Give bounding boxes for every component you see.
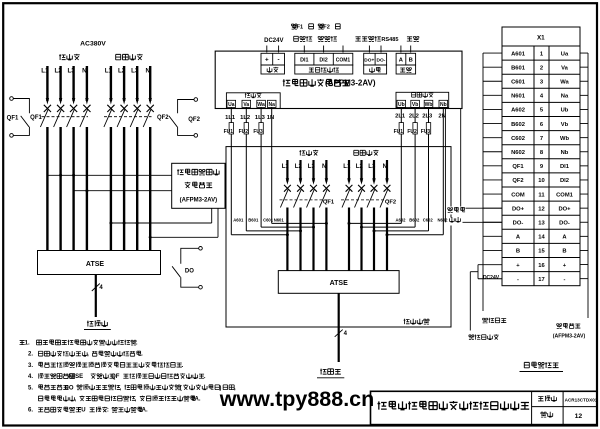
svg-text:ACR13CTDX01: ACR13CTDX01 bbox=[565, 398, 598, 403]
svg-text:Ua: Ua bbox=[561, 51, 569, 57]
svg-text:Wa: Wa bbox=[560, 79, 569, 85]
svg-text:11: 11 bbox=[538, 192, 545, 198]
svg-text:(APPM3-2AV): (APPM3-2AV) bbox=[325, 79, 376, 88]
svg-text:Nb: Nb bbox=[440, 102, 447, 108]
svg-text:QF1: QF1 bbox=[292, 25, 303, 31]
svg-text::: : bbox=[107, 408, 109, 414]
svg-text:-: - bbox=[278, 57, 280, 64]
svg-text:DI1: DI1 bbox=[300, 57, 308, 63]
svg-text:DO+: DO+ bbox=[512, 206, 525, 212]
svg-text:DO+: DO+ bbox=[364, 57, 374, 63]
svg-text:B: B bbox=[409, 57, 413, 63]
svg-text:A601: A601 bbox=[233, 217, 244, 222]
svg-text:B602: B602 bbox=[409, 217, 420, 222]
svg-text:Ub: Ub bbox=[398, 102, 405, 108]
svg-text:ATSE: ATSE bbox=[68, 374, 84, 380]
svg-text:Wb: Wb bbox=[560, 136, 569, 142]
svg-text:FU3: FU3 bbox=[421, 129, 431, 135]
svg-text:N601: N601 bbox=[274, 217, 285, 222]
svg-text:Wb: Wb bbox=[425, 102, 433, 108]
svg-text:DI2: DI2 bbox=[560, 178, 569, 184]
svg-text:FU: FU bbox=[78, 408, 86, 414]
svg-text:QF2: QF2 bbox=[512, 178, 523, 184]
svg-text:): ) bbox=[219, 385, 221, 391]
svg-text:B: B bbox=[516, 249, 520, 255]
svg-text:Ua: Ua bbox=[228, 102, 235, 108]
svg-text:FU2: FU2 bbox=[239, 129, 249, 135]
svg-text:DO: DO bbox=[185, 268, 194, 274]
svg-text:17: 17 bbox=[538, 277, 544, 283]
svg-text:N601: N601 bbox=[511, 94, 526, 100]
svg-text:3A.: 3A. bbox=[191, 396, 201, 402]
svg-text:Vb: Vb bbox=[412, 102, 418, 108]
svg-text:10: 10 bbox=[538, 178, 544, 184]
svg-text:Na: Na bbox=[268, 102, 275, 108]
svg-text:B: B bbox=[562, 249, 566, 255]
svg-text:(AFPM3-2AV): (AFPM3-2AV) bbox=[553, 333, 586, 339]
svg-text:Ub: Ub bbox=[561, 108, 569, 114]
svg-text:2L2: 2L2 bbox=[409, 114, 419, 120]
svg-text:B602: B602 bbox=[511, 122, 525, 128]
svg-text:COM1: COM1 bbox=[556, 192, 574, 198]
svg-text:QF2: QF2 bbox=[188, 117, 200, 123]
svg-text:N602: N602 bbox=[511, 150, 525, 156]
svg-text:13: 13 bbox=[538, 220, 545, 226]
svg-text:-: - bbox=[517, 277, 519, 283]
svg-text:4.: 4. bbox=[28, 374, 33, 380]
svg-text:DO-: DO- bbox=[513, 220, 524, 226]
svg-text:3.: 3. bbox=[28, 363, 33, 369]
svg-text:16: 16 bbox=[538, 263, 545, 269]
svg-text:X1: X1 bbox=[537, 35, 545, 42]
svg-text:DO: DO bbox=[65, 385, 74, 391]
svg-text:FU2: FU2 bbox=[407, 129, 417, 135]
svg-text:N602: N602 bbox=[437, 217, 448, 222]
svg-text:QF1: QF1 bbox=[7, 116, 19, 122]
svg-text:14: 14 bbox=[538, 235, 545, 241]
svg-text:DO+: DO+ bbox=[558, 206, 571, 212]
svg-text:A602: A602 bbox=[395, 217, 406, 222]
svg-text:2L1: 2L1 bbox=[395, 114, 406, 120]
svg-text:C602: C602 bbox=[423, 217, 434, 222]
svg-text:FU1: FU1 bbox=[224, 129, 234, 135]
svg-text:A602: A602 bbox=[511, 108, 525, 114]
svg-text:7: 7 bbox=[540, 136, 543, 142]
svg-text:C601: C601 bbox=[263, 217, 274, 222]
svg-text:AC380V: AC380V bbox=[80, 41, 106, 48]
svg-text:1L1: 1L1 bbox=[225, 115, 236, 121]
svg-text:DO-: DO- bbox=[559, 220, 570, 226]
svg-text:1A.: 1A. bbox=[138, 408, 148, 414]
svg-text:: 1.: : 1. bbox=[21, 340, 30, 346]
svg-text:1L3: 1L3 bbox=[255, 115, 266, 121]
svg-text:QF1: QF1 bbox=[512, 164, 524, 170]
svg-text:www.tpy888.cn: www.tpy888.cn bbox=[219, 387, 375, 411]
svg-text:Na: Na bbox=[561, 94, 569, 100]
svg-text:QF1: QF1 bbox=[323, 200, 335, 206]
svg-text:2N: 2N bbox=[438, 114, 445, 120]
svg-text:(: ( bbox=[180, 385, 182, 391]
svg-text:QF1: QF1 bbox=[30, 115, 42, 121]
svg-text:QF: QF bbox=[111, 374, 120, 380]
svg-text:6.: 6. bbox=[28, 408, 33, 414]
svg-text:Wa: Wa bbox=[257, 102, 265, 108]
svg-text:FU1: FU1 bbox=[394, 129, 404, 135]
svg-text:Va: Va bbox=[243, 102, 249, 108]
svg-text:2: 2 bbox=[540, 65, 543, 71]
svg-text:2L3: 2L3 bbox=[422, 114, 433, 120]
svg-text:QF2: QF2 bbox=[157, 115, 169, 121]
svg-text:QF2: QF2 bbox=[319, 25, 330, 31]
svg-text:C601: C601 bbox=[511, 79, 526, 85]
svg-text:COM: COM bbox=[511, 192, 525, 198]
svg-text:A601: A601 bbox=[511, 51, 526, 57]
svg-text:DI2: DI2 bbox=[319, 57, 327, 63]
svg-text:COM1: COM1 bbox=[336, 57, 351, 63]
svg-text:FU3: FU3 bbox=[253, 129, 263, 135]
svg-text:Nb: Nb bbox=[561, 150, 569, 156]
svg-text:(AFPM3-2AV): (AFPM3-2AV) bbox=[180, 198, 218, 204]
svg-text:DI1: DI1 bbox=[560, 164, 570, 170]
svg-text:B601: B601 bbox=[511, 65, 526, 71]
svg-text:C602: C602 bbox=[511, 136, 525, 142]
svg-text:+: + bbox=[265, 57, 269, 64]
svg-text:RS485: RS485 bbox=[381, 37, 398, 43]
svg-text:1L2: 1L2 bbox=[240, 115, 250, 121]
svg-text:15: 15 bbox=[538, 249, 545, 255]
svg-text:Va: Va bbox=[561, 65, 569, 71]
svg-text:12: 12 bbox=[575, 413, 583, 420]
svg-text:-: - bbox=[564, 277, 566, 283]
svg-text:DO-: DO- bbox=[377, 57, 386, 63]
svg-text:QF2: QF2 bbox=[385, 200, 396, 206]
svg-text:12: 12 bbox=[538, 206, 544, 212]
svg-text:1N: 1N bbox=[267, 115, 274, 121]
svg-text:ATSE: ATSE bbox=[86, 261, 104, 268]
svg-text:DC24V: DC24V bbox=[483, 275, 500, 281]
svg-text:B601: B601 bbox=[248, 217, 259, 222]
svg-text:2.: 2. bbox=[28, 352, 33, 358]
svg-text:Vb: Vb bbox=[561, 122, 569, 128]
svg-text:ATSE: ATSE bbox=[330, 280, 348, 287]
svg-text:DC24V: DC24V bbox=[264, 38, 283, 44]
svg-text:5.: 5. bbox=[28, 385, 33, 391]
